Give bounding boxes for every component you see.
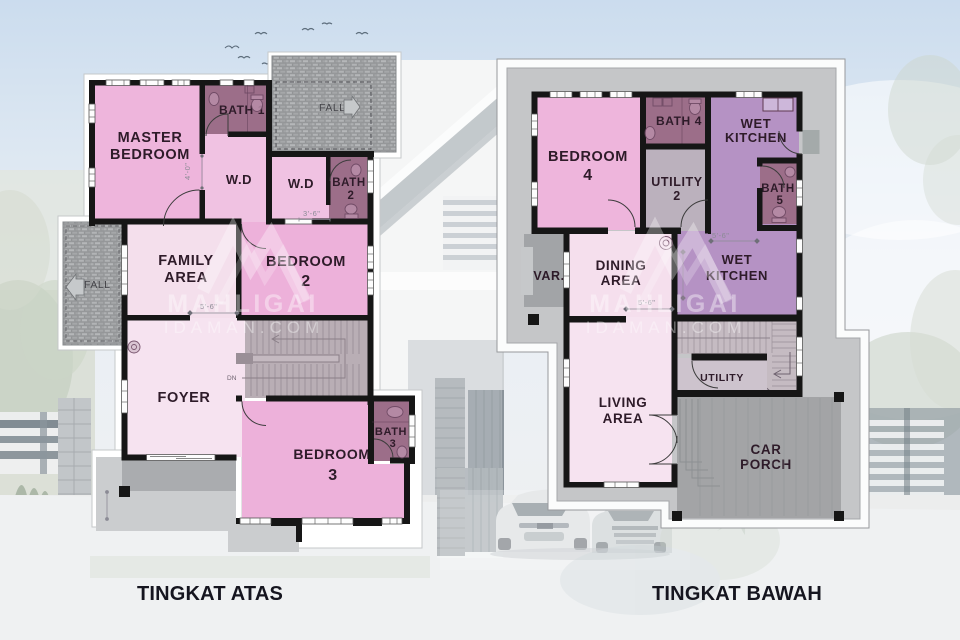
svg-text:W.D: W.D [288,176,314,191]
svg-text:FALL: FALL [84,279,111,291]
svg-text:2: 2 [348,190,355,202]
svg-text:BATH: BATH [332,177,366,189]
svg-text:3'-6": 3'-6" [303,209,320,218]
svg-text:FAMILY: FAMILY [158,253,213,269]
svg-text:FALL: FALL [319,102,346,114]
svg-text:CAR: CAR [750,442,781,457]
svg-text:4: 4 [583,167,593,184]
svg-text:TINGKAT BAWAH: TINGKAT BAWAH [652,583,822,605]
svg-text:W.D: W.D [226,172,252,187]
svg-text:VAR.: VAR. [533,269,564,283]
svg-text:5'-6": 5'-6" [712,231,729,240]
svg-text:MASTER: MASTER [118,130,183,146]
svg-text:BATH: BATH [761,183,795,195]
svg-text:BEDROOM: BEDROOM [293,446,370,462]
svg-text:TINGKAT ATAS: TINGKAT ATAS [137,583,283,605]
svg-text:UTILITY: UTILITY [651,175,702,189]
svg-text:DN: DN [227,375,237,382]
svg-text:FOYER: FOYER [158,390,211,406]
svg-text:5: 5 [777,195,784,207]
svg-text:BEDROOM: BEDROOM [110,147,190,163]
svg-text:3: 3 [328,467,338,484]
svg-text:WET: WET [741,116,772,131]
svg-text:AREA: AREA [603,411,644,426]
svg-text:BATH 4: BATH 4 [656,114,702,128]
svg-text:2: 2 [673,189,681,203]
svg-text:BEDROOM: BEDROOM [548,149,628,165]
svg-text:WET: WET [722,252,753,267]
svg-text:KITCHEN: KITCHEN [725,130,787,145]
svg-text:BATH: BATH [375,426,407,438]
svg-text:4'-0": 4'-0" [183,163,192,180]
svg-text:UTILITY: UTILITY [700,372,744,384]
svg-text:LIVING: LIVING [599,395,648,410]
